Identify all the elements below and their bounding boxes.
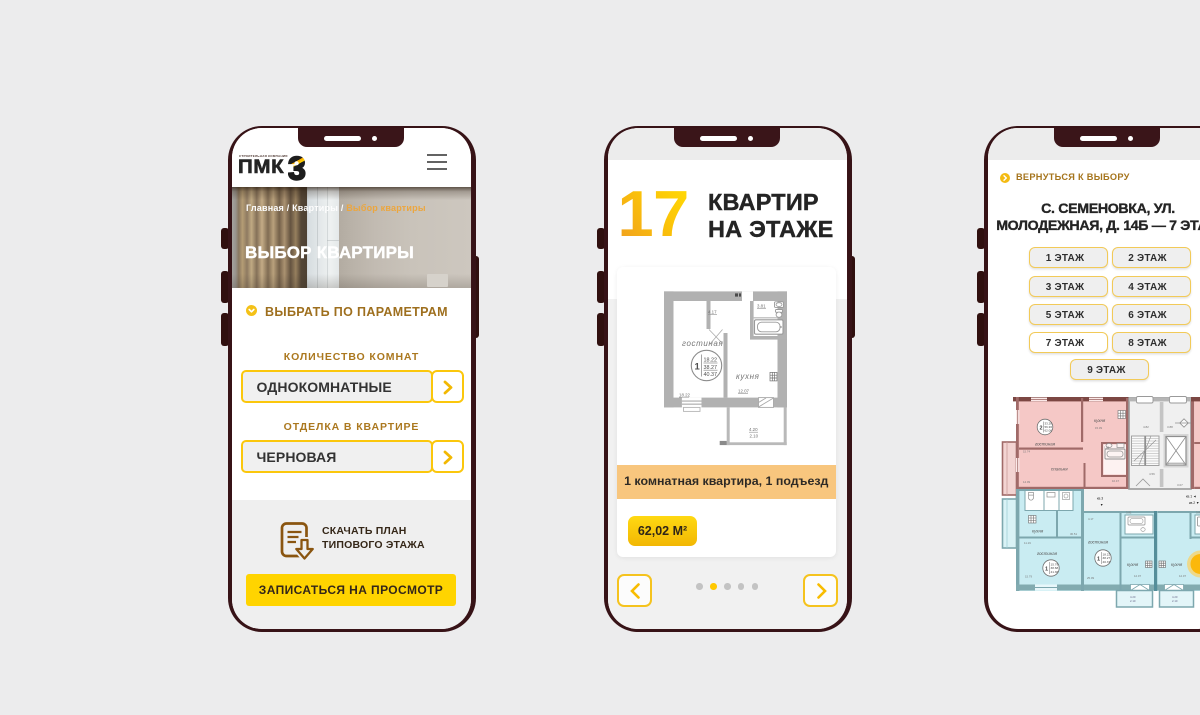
svg-text:кв.1 ◄: кв.1 ◄ — [1186, 495, 1196, 499]
svg-text:40.37: 40.37 — [704, 372, 718, 378]
svg-text:4.56: 4.56 — [1149, 472, 1155, 476]
svg-text:гостиная: гостиная — [1037, 551, 1058, 556]
svg-text:2.10: 2.10 — [1172, 599, 1178, 603]
svg-text:▼: ▼ — [1100, 503, 1103, 507]
svg-text:кухня: кухня — [1032, 529, 1044, 534]
svg-text:15.79: 15.79 — [1025, 575, 1032, 579]
svg-text:15.74: 15.74 — [1023, 450, 1030, 454]
svg-text:15.39: 15.39 — [1095, 426, 1102, 430]
svg-text:2.10: 2.10 — [750, 434, 759, 439]
svg-text:спальня: спальня — [1051, 467, 1068, 472]
svg-text:3.81: 3.81 — [1196, 511, 1200, 515]
svg-text:1: 1 — [1097, 557, 1100, 563]
svg-text:2: 2 — [1040, 426, 1043, 432]
svg-text:гостиная: гостиная — [1088, 540, 1109, 545]
svg-text:25.09: 25.09 — [1087, 576, 1094, 580]
svg-text:12.07: 12.07 — [1134, 574, 1141, 578]
svg-text:12.07: 12.07 — [738, 389, 750, 394]
svg-text:3.07: 3.07 — [1177, 483, 1183, 487]
svg-text:кухня: кухня — [1094, 418, 1106, 423]
svg-text:кухня: кухня — [1171, 562, 1183, 567]
svg-text:3.81: 3.81 — [757, 304, 766, 309]
svg-text:4.17: 4.17 — [708, 310, 717, 315]
svg-text:гостиная: гостиная — [682, 339, 723, 348]
svg-text:10.47: 10.47 — [1112, 479, 1119, 483]
svg-text:2.10: 2.10 — [1130, 599, 1136, 603]
svg-text:4.82: 4.82 — [1143, 425, 1149, 429]
svg-text:гостиная: гостиная — [1035, 442, 1056, 447]
svg-text:кухня: кухня — [1127, 562, 1139, 567]
svg-text:3.81: 3.81 — [1126, 511, 1132, 515]
svg-text:4.20: 4.20 — [749, 427, 758, 432]
svg-text:12.07: 12.07 — [1179, 574, 1186, 578]
svg-text:1: 1 — [695, 362, 701, 373]
svg-text:18.22: 18.22 — [704, 358, 718, 364]
svg-text:41.36: 41.36 — [1051, 570, 1059, 574]
svg-text:кухня: кухня — [736, 372, 760, 381]
svg-text:1: 1 — [1045, 567, 1048, 573]
svg-text:3.88: 3.88 — [1167, 425, 1173, 429]
svg-text:кв.3: кв.3 — [1097, 497, 1103, 501]
svg-text:14.09: 14.09 — [1023, 480, 1030, 484]
svg-text:1.88: 1.88 — [1104, 446, 1110, 450]
svg-text:62.06: 62.06 — [1045, 429, 1053, 433]
svg-text:4.17: 4.17 — [1088, 517, 1094, 521]
svg-text:30.51: 30.51 — [1070, 532, 1077, 536]
svg-text:кв.2 ▼: кв.2 ▼ — [1189, 501, 1199, 505]
svg-text:18.22: 18.22 — [679, 393, 691, 398]
svg-text:40.37: 40.37 — [1103, 560, 1111, 564]
svg-text:11.19: 11.19 — [1024, 541, 1031, 545]
svg-text:3: 3 — [288, 152, 306, 184]
